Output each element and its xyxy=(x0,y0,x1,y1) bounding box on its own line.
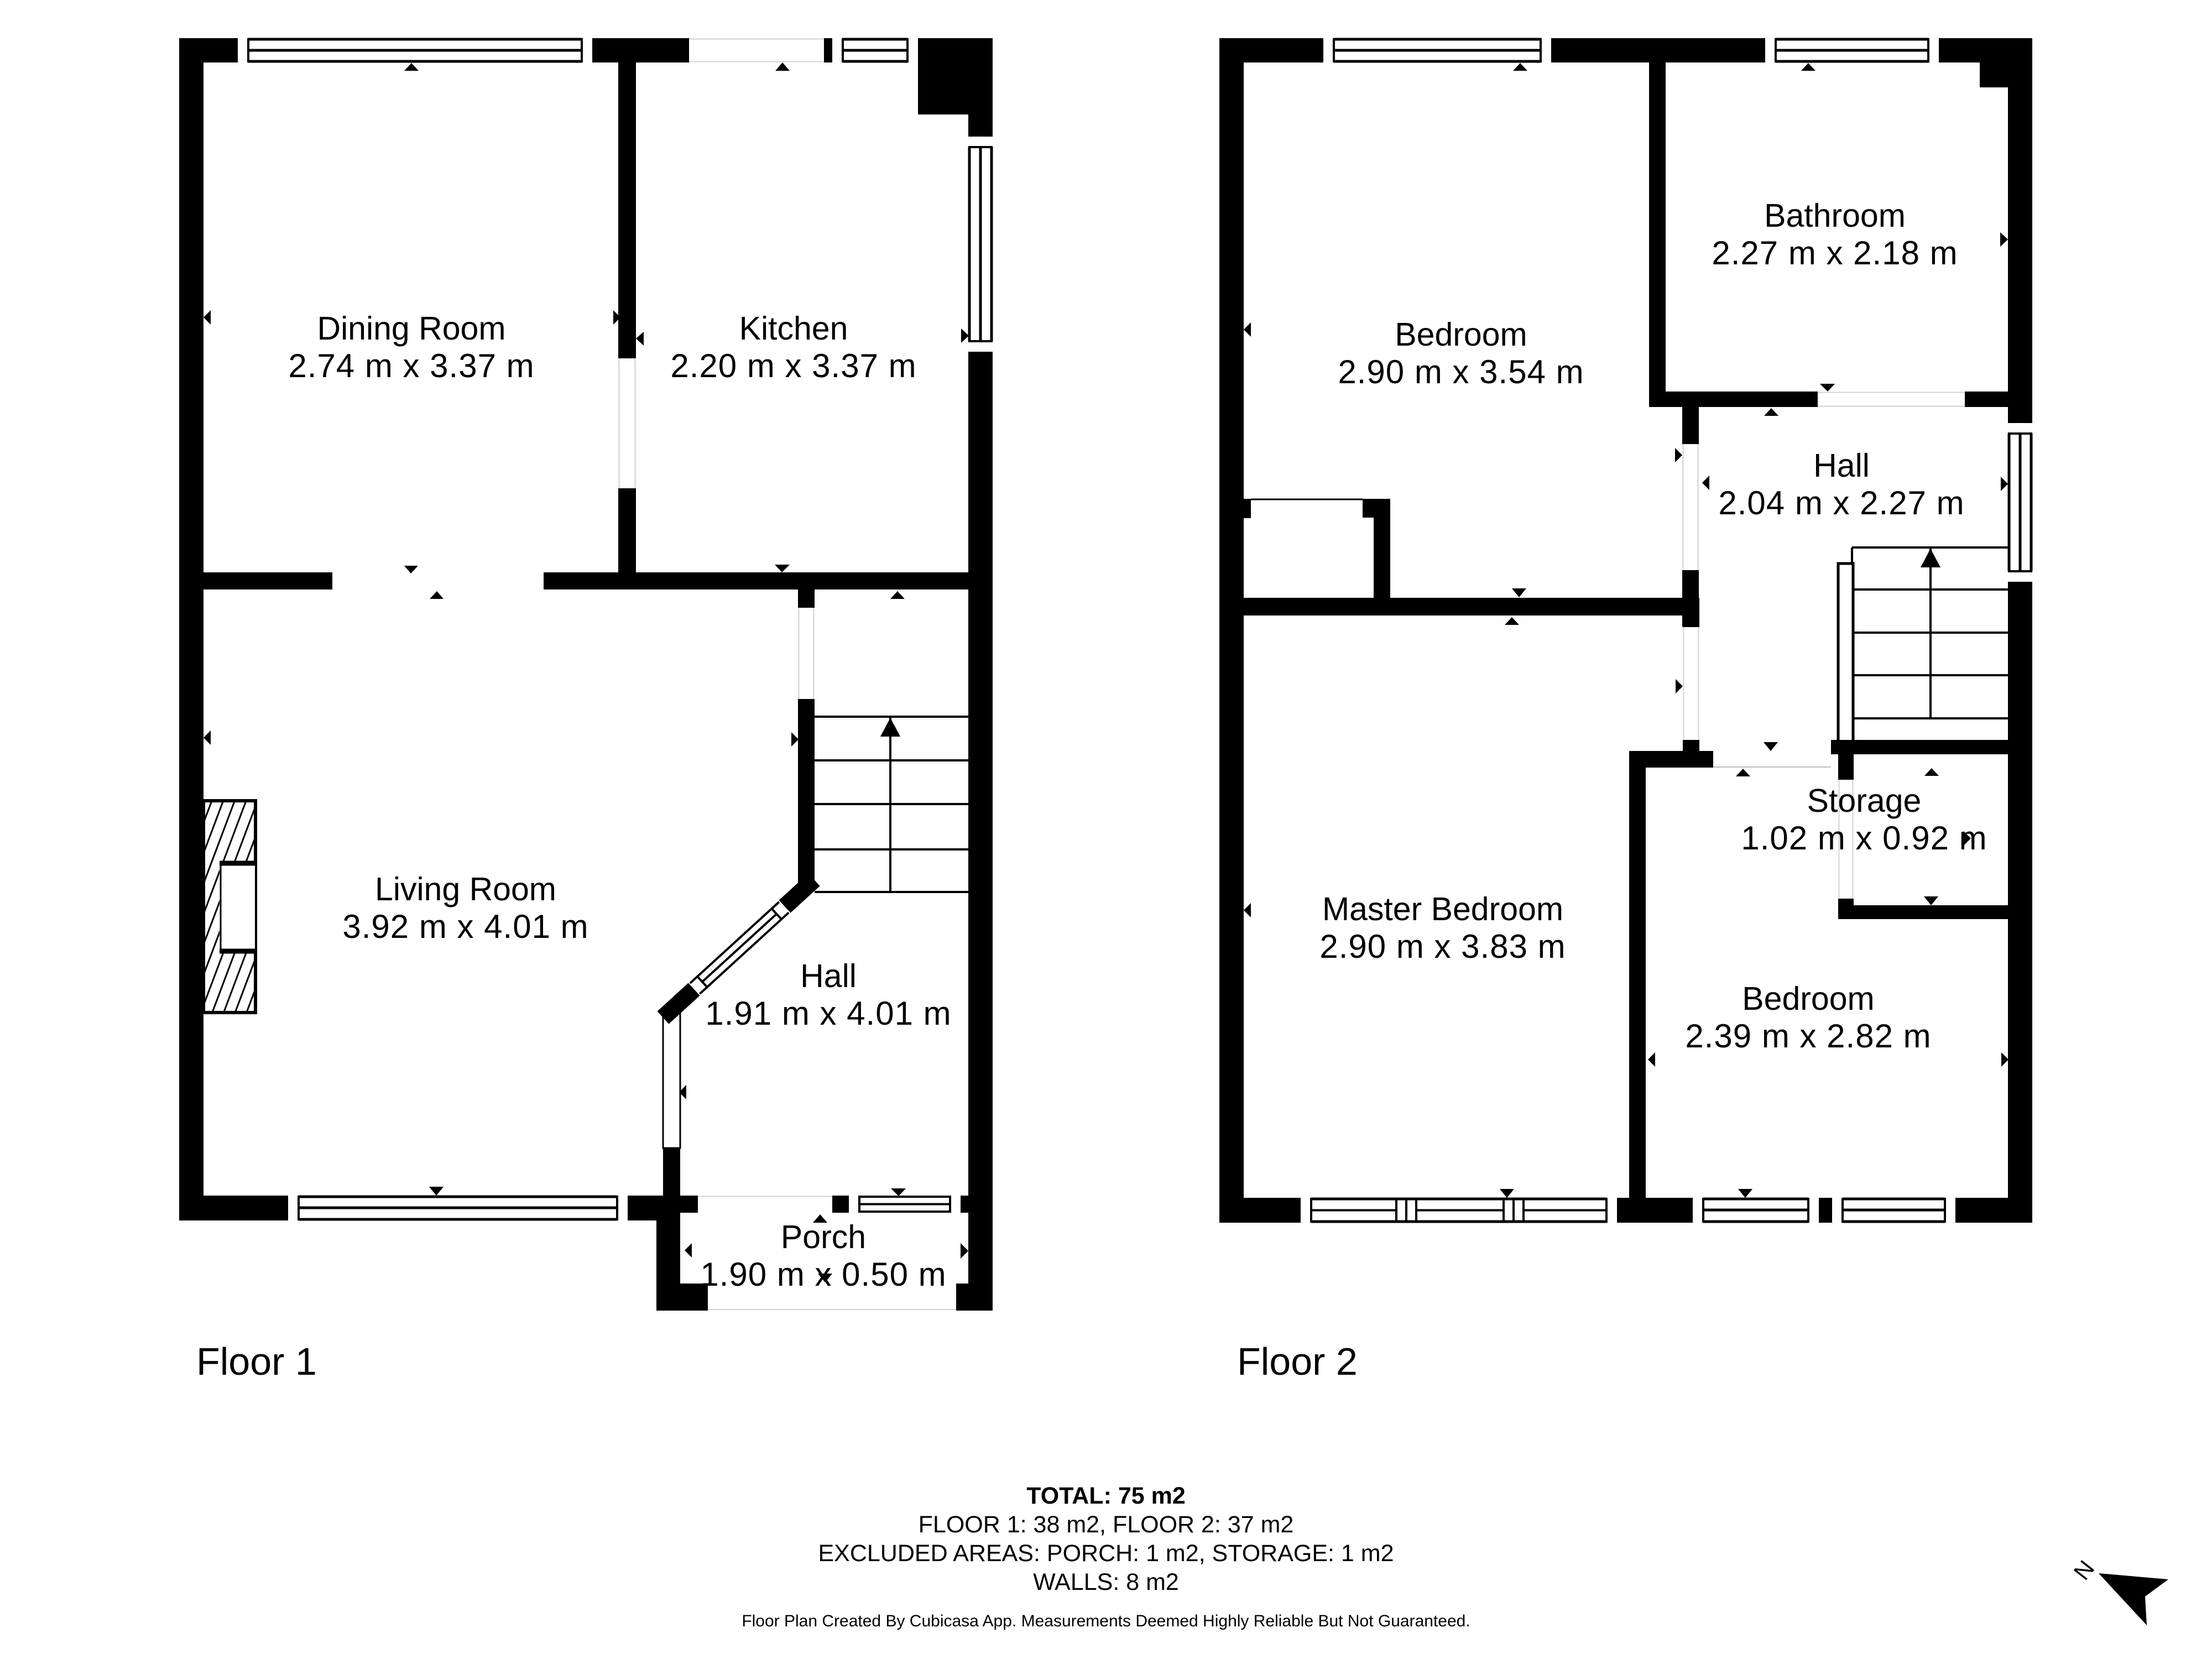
svg-text:2.39 m x 2.82 m: 2.39 m x 2.82 m xyxy=(1685,1018,1931,1055)
svg-text:Floor 1: Floor 1 xyxy=(196,1340,317,1383)
svg-text:Floor Plan Created By Cubicasa: Floor Plan Created By Cubicasa App. Meas… xyxy=(742,1612,1470,1630)
svg-text:Bedroom: Bedroom xyxy=(1742,980,1874,1017)
svg-text:2.90 m x 3.54 m: 2.90 m x 3.54 m xyxy=(1338,353,1584,390)
svg-text:Porch: Porch xyxy=(781,1219,866,1255)
svg-text:TOTAL: 75 m2: TOTAL: 75 m2 xyxy=(1026,1483,1186,1509)
svg-text:Kitchen: Kitchen xyxy=(739,310,848,347)
svg-text:2.27 m x 2.18 m: 2.27 m x 2.18 m xyxy=(1712,234,1958,272)
svg-text:1.02 m x 0.92 m: 1.02 m x 0.92 m xyxy=(1741,820,1987,857)
svg-text:Hall: Hall xyxy=(1813,447,1870,484)
svg-text:Floor 2: Floor 2 xyxy=(1237,1340,1358,1383)
svg-text:Storage: Storage xyxy=(1807,782,1922,819)
svg-text:3.92 m x 4.01 m: 3.92 m x 4.01 m xyxy=(342,908,588,945)
svg-text:Hall: Hall xyxy=(800,958,857,994)
svg-text:2.74 m x 3.37 m: 2.74 m x 3.37 m xyxy=(288,347,534,384)
svg-text:FLOOR 1: 38 m2, FLOOR 2: 37 m2: FLOOR 1: 38 m2, FLOOR 2: 37 m2 xyxy=(919,1511,1294,1538)
svg-text:2.04 m x 2.27 m: 2.04 m x 2.27 m xyxy=(1718,484,1964,521)
svg-text:Dining Room: Dining Room xyxy=(317,310,505,347)
svg-text:2.20 m x 3.37 m: 2.20 m x 3.37 m xyxy=(670,347,916,384)
svg-text:WALLS: 8 m2: WALLS: 8 m2 xyxy=(1033,1569,1179,1595)
svg-text:1.90 m x 0.50 m: 1.90 m x 0.50 m xyxy=(700,1256,946,1293)
svg-text:Bathroom: Bathroom xyxy=(1764,197,1906,234)
svg-text:Master Bedroom: Master Bedroom xyxy=(1322,891,1563,927)
svg-text:Living Room: Living Room xyxy=(375,871,556,907)
svg-text:2.90 m x 3.83 m: 2.90 m x 3.83 m xyxy=(1319,928,1566,965)
svg-text:Bedroom: Bedroom xyxy=(1395,316,1527,353)
svg-text:1.91 m x 4.01 m: 1.91 m x 4.01 m xyxy=(705,995,951,1032)
svg-text:EXCLUDED AREAS: PORCH: 1 m2, S: EXCLUDED AREAS: PORCH: 1 m2, STORAGE: 1 … xyxy=(818,1540,1394,1567)
